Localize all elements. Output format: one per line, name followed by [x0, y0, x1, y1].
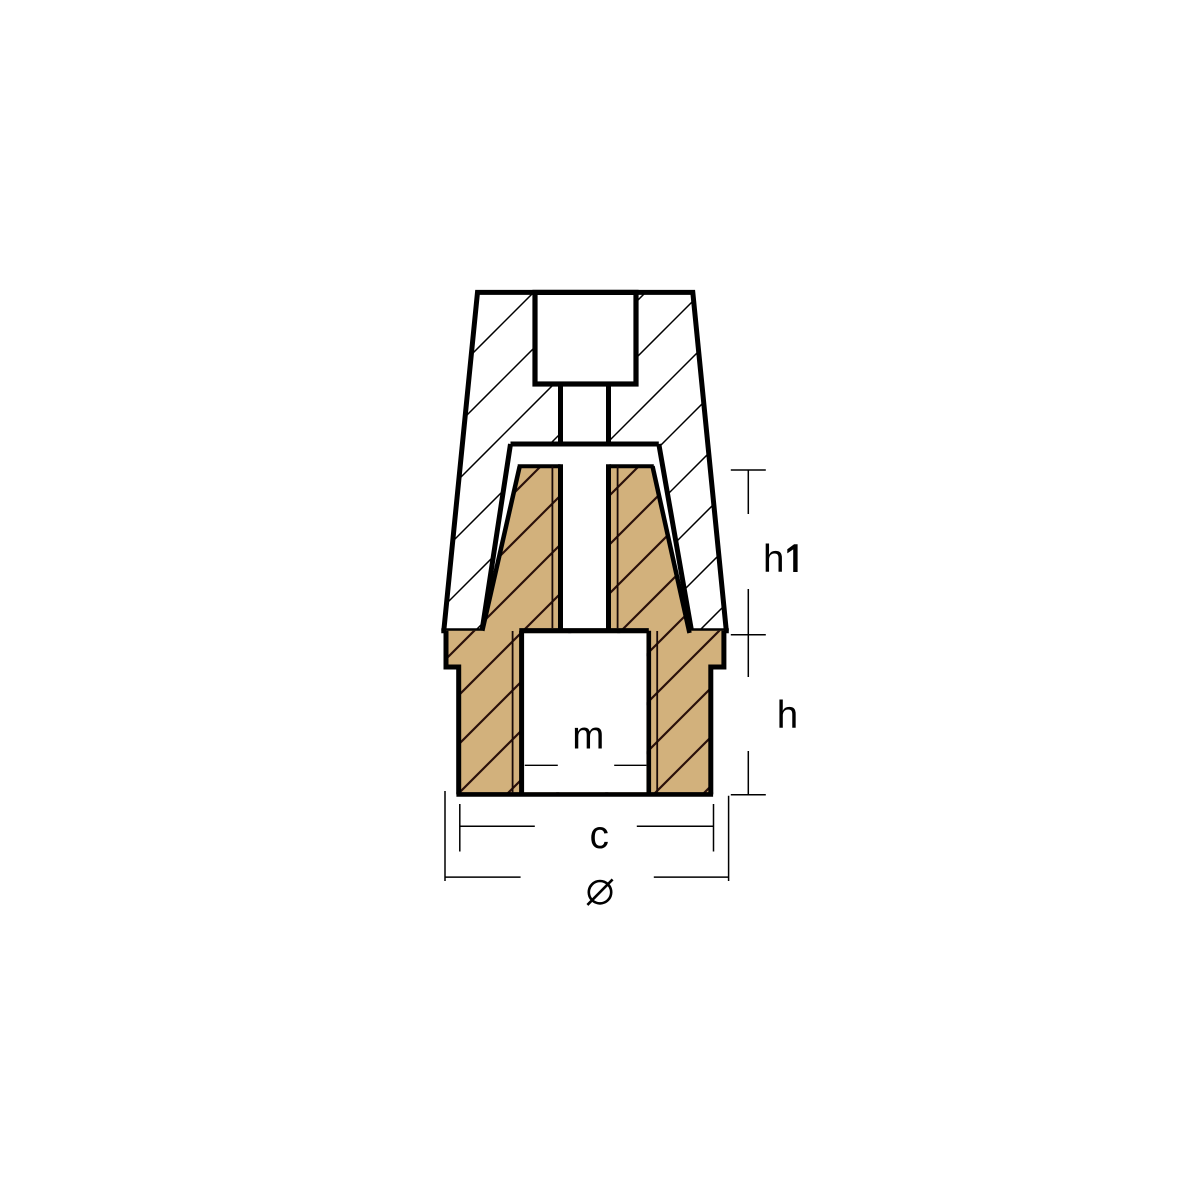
- svg-text:m: m: [572, 714, 604, 757]
- svg-text:h: h: [763, 538, 784, 581]
- svg-text:c: c: [590, 814, 609, 857]
- svg-text:h: h: [777, 694, 798, 737]
